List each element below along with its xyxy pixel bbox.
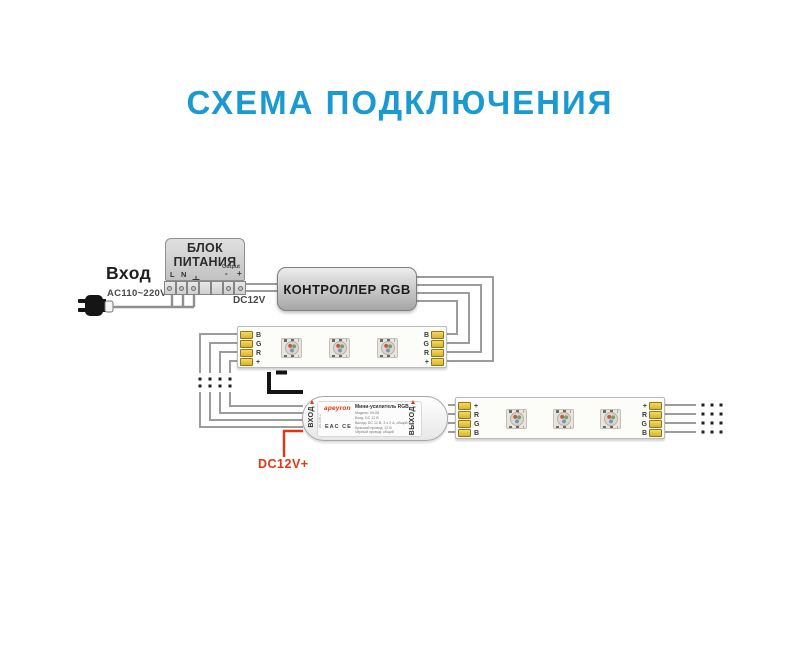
pad-label: B	[256, 331, 261, 340]
pad-labels-left: + R G B	[474, 402, 479, 438]
rgb-led-chip	[600, 409, 621, 429]
pad-labels-right: + R G B	[642, 402, 647, 438]
certification-marks: EAC CE	[325, 424, 352, 430]
amplifier-sku: AV-04617	[319, 413, 323, 428]
pad-label: R	[474, 411, 479, 420]
pad-label: G	[424, 340, 429, 349]
pad-label: G	[642, 420, 647, 429]
led-lens	[510, 412, 524, 426]
pad-label: B	[424, 331, 429, 340]
dc12v-label: DC12V	[233, 296, 265, 306]
pad-label: B	[642, 429, 647, 438]
solder-pads-right	[649, 402, 662, 437]
input-label: Вход	[106, 265, 151, 283]
pad-labels-left: B G R +	[256, 331, 261, 367]
amplifier-title: Мини-усилитель RGB	[355, 404, 409, 410]
terminal-n	[176, 281, 188, 295]
terminal-l-label: L	[170, 271, 175, 279]
wire-psu-to-controller	[246, 284, 277, 291]
pad-label: R	[424, 349, 429, 358]
terminal-n-label: N	[181, 271, 186, 279]
amplifier-input-label: ВХОД	[308, 406, 315, 428]
led-lens	[381, 341, 395, 355]
red-arrow-icon	[411, 400, 415, 404]
connection-diagram: СХЕМА ПОДКЛЮЧЕНИЯ	[0, 0, 800, 655]
psu-terminal-block	[164, 281, 246, 295]
red-arrow-icon	[310, 400, 314, 404]
solder-pads-left	[458, 402, 471, 437]
rgb-mini-amplifier: ВХОД apeyron AV-04617 EAC CE Мини-усилит…	[302, 396, 448, 441]
terminal-ground	[187, 281, 199, 295]
earth-ground-icon	[192, 271, 200, 279]
terminal-minus	[223, 281, 235, 295]
led-strip-2: + R G B + R G B	[455, 397, 665, 439]
wire-black-common	[269, 371, 303, 393]
minus-mark	[276, 371, 287, 375]
terminal-unused	[211, 281, 223, 295]
pad-label: G	[256, 340, 261, 349]
solder-pads-left	[240, 331, 253, 366]
rgb-led-chip	[377, 338, 398, 358]
rgb-led-chip	[281, 338, 302, 358]
pad-label: +	[256, 358, 261, 367]
led-lens	[604, 412, 618, 426]
pad-label: R	[642, 411, 647, 420]
pad-label: R	[256, 349, 261, 358]
amplifier-output-label: ВЫХОД	[409, 406, 416, 435]
led-lens	[333, 341, 347, 355]
rgb-led-chip	[506, 409, 527, 429]
pad-label: B	[474, 429, 479, 438]
pad-label: +	[425, 358, 429, 367]
amplifier-specs: Модель: 04-08 Вход: DC 12 В Выход: DC 12…	[355, 411, 414, 435]
solder-pads-right	[431, 331, 444, 366]
brand-logo: apeyron	[324, 405, 351, 412]
terminal-plus	[234, 281, 246, 295]
spec-line: Выход: DC 12 В, 3 x 2 А, общий 6 А	[355, 421, 414, 426]
led-lens	[285, 341, 299, 355]
pad-label: +	[474, 402, 479, 411]
terminal-unused	[199, 281, 211, 295]
rgb-led-chip	[329, 338, 350, 358]
rgb-controller: КОНТРОЛЛЕР RGB	[277, 267, 417, 311]
output-plus-label: +	[237, 270, 242, 278]
wire-strip2-outgoing	[662, 405, 696, 432]
rgb-led-chip	[553, 409, 574, 429]
led-strip-1: B G R + B G R +	[237, 326, 447, 368]
spec-line: Чёрный провод: общий	[355, 430, 414, 435]
output-minus-label: -	[225, 270, 228, 278]
power-supply-unit: БЛОК ПИТАНИЯ L N Output - +	[165, 238, 245, 281]
input-voltage-label: AC110~220V	[107, 289, 167, 299]
dots-continuation-right	[702, 404, 723, 434]
led-lens	[557, 412, 571, 426]
dc12v-plus-label: DC12V+	[258, 458, 309, 471]
controller-name: КОНТРОЛЛЕР RGB	[283, 282, 410, 297]
pad-label: G	[474, 420, 479, 429]
wire-red-12v	[284, 431, 303, 457]
pad-label: +	[643, 402, 647, 411]
dots-continuation-left	[199, 378, 232, 388]
pad-labels-right: B G R +	[424, 331, 429, 367]
terminal-l	[164, 281, 176, 295]
